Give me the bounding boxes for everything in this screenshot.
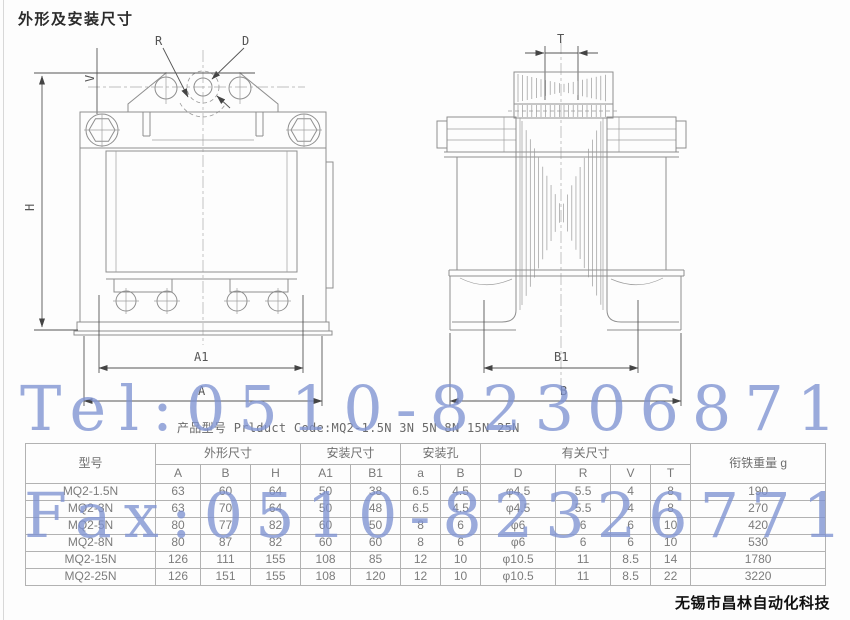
value-cell: 80 bbox=[156, 535, 201, 552]
value-cell: 151 bbox=[201, 569, 251, 586]
value-cell: 155 bbox=[251, 552, 301, 569]
sub-header-3: A1 bbox=[301, 465, 351, 484]
value-cell: 4.5 bbox=[441, 501, 481, 518]
value-cell: 111 bbox=[201, 552, 251, 569]
left-view-front: R D V bbox=[23, 34, 333, 406]
value-cell: 6.5 bbox=[401, 501, 441, 518]
value-cell: 6 bbox=[441, 535, 481, 552]
dim-label-h: H bbox=[23, 204, 37, 211]
value-cell: 87 bbox=[201, 535, 251, 552]
model-cell: MQ2-1.5N bbox=[26, 484, 156, 501]
value-cell: 126 bbox=[156, 569, 201, 586]
value-cell: 64 bbox=[251, 501, 301, 518]
value-cell: 10 bbox=[651, 518, 691, 535]
value-cell: 120 bbox=[351, 569, 401, 586]
dim-label-a1: A1 bbox=[194, 350, 208, 364]
table-row: MQ2-1.5N63606450386.54.5φ4.55.548190 bbox=[26, 484, 826, 501]
value-cell: 8 bbox=[401, 518, 441, 535]
value-cell: φ6 bbox=[481, 535, 556, 552]
value-cell: 8.5 bbox=[611, 569, 651, 586]
value-cell: 4.5 bbox=[441, 484, 481, 501]
value-cell: 5.5 bbox=[556, 484, 611, 501]
value-cell: 10 bbox=[441, 552, 481, 569]
coil-winding-hatch bbox=[522, 121, 601, 305]
value-cell: 190 bbox=[691, 484, 826, 501]
header-group-5: 衔铁重量 g bbox=[691, 444, 826, 484]
page-title: 外形及安装尺寸 bbox=[18, 8, 134, 29]
value-cell: 108 bbox=[301, 552, 351, 569]
dim-label-d: D bbox=[242, 34, 249, 48]
value-cell: 11 bbox=[556, 552, 611, 569]
table-row: MQ2-8N808782606086φ66610530 bbox=[26, 535, 826, 552]
spec-table-body: MQ2-1.5N63606450386.54.5φ4.55.548190MQ2-… bbox=[26, 484, 826, 586]
value-cell: 63 bbox=[156, 484, 201, 501]
model-cell: MQ2-25N bbox=[26, 569, 156, 586]
value-cell: 6 bbox=[556, 535, 611, 552]
dim-label-t: T bbox=[557, 32, 564, 46]
sub-header-1: B bbox=[201, 465, 251, 484]
sub-header-6: B bbox=[441, 465, 481, 484]
table-row: MQ2-25N1261511551081201210φ10.5118.52232… bbox=[26, 569, 826, 586]
sub-header-8: R bbox=[556, 465, 611, 484]
header-group-1: 外形尺寸 bbox=[156, 444, 301, 465]
value-cell: 6 bbox=[611, 535, 651, 552]
value-cell: 3220 bbox=[691, 569, 826, 586]
document-page: 外形及安装尺寸 R D bbox=[0, 0, 850, 620]
value-cell: 12 bbox=[401, 569, 441, 586]
sub-header-2: H bbox=[251, 465, 301, 484]
product-code-line: 产品型号 Prlduct Code:MQ2-1.5N 3N 5N 8N 15N … bbox=[177, 419, 520, 436]
sub-header-5: a bbox=[401, 465, 441, 484]
value-cell: 6 bbox=[611, 518, 651, 535]
model-cell: MQ2-8N bbox=[26, 535, 156, 552]
value-cell: 50 bbox=[351, 518, 401, 535]
value-cell: 530 bbox=[691, 535, 826, 552]
value-cell: φ10.5 bbox=[481, 569, 556, 586]
value-cell: 6 bbox=[441, 518, 481, 535]
value-cell: 8 bbox=[651, 501, 691, 518]
value-cell: 60 bbox=[301, 535, 351, 552]
value-cell: 22 bbox=[651, 569, 691, 586]
value-cell: φ6 bbox=[481, 518, 556, 535]
value-cell: 11 bbox=[556, 569, 611, 586]
sub-header-10: T bbox=[651, 465, 691, 484]
value-cell: 50 bbox=[301, 484, 351, 501]
value-cell: 10 bbox=[441, 569, 481, 586]
dim-label-v: V bbox=[83, 75, 97, 82]
model-cell: MQ2-3N bbox=[26, 501, 156, 518]
dim-label-b: B bbox=[560, 384, 567, 398]
dim-label-r: R bbox=[155, 34, 163, 48]
value-cell: 85 bbox=[351, 552, 401, 569]
value-cell: 8.5 bbox=[611, 552, 651, 569]
dim-label-b1: B1 bbox=[554, 350, 568, 364]
value-cell: 8 bbox=[651, 484, 691, 501]
value-cell: 63 bbox=[156, 501, 201, 518]
table-row: MQ2-3N63706450486.54.5φ4.55.548270 bbox=[26, 501, 826, 518]
value-cell: 60 bbox=[301, 518, 351, 535]
value-cell: 5.5 bbox=[556, 501, 611, 518]
value-cell: 82 bbox=[251, 535, 301, 552]
value-cell: 12 bbox=[401, 552, 441, 569]
value-cell: φ10.5 bbox=[481, 552, 556, 569]
model-cell: MQ2-5N bbox=[26, 518, 156, 535]
header-group-0: 型号 bbox=[26, 444, 156, 484]
armature-hatch bbox=[518, 74, 605, 102]
value-cell: 10 bbox=[651, 535, 691, 552]
value-cell: 64 bbox=[251, 484, 301, 501]
spec-table-header: 型号外形尺寸安装尺寸安装孔有关尺寸衔铁重量 gABHA1B1aBDRVT bbox=[26, 444, 826, 484]
sub-header-9: V bbox=[611, 465, 651, 484]
value-cell: 60 bbox=[201, 484, 251, 501]
value-cell: 420 bbox=[691, 518, 826, 535]
sub-header-7: D bbox=[481, 465, 556, 484]
value-cell: 155 bbox=[251, 569, 301, 586]
sub-header-4: B1 bbox=[351, 465, 401, 484]
value-cell: 6.5 bbox=[401, 484, 441, 501]
header-group-3: 安装孔 bbox=[401, 444, 481, 465]
right-view-side: T bbox=[437, 32, 686, 406]
header-group-2: 安装尺寸 bbox=[301, 444, 401, 465]
sub-header-0: A bbox=[156, 465, 201, 484]
value-cell: 50 bbox=[301, 501, 351, 518]
value-cell: 270 bbox=[691, 501, 826, 518]
technical-drawing: R D V bbox=[0, 0, 850, 415]
value-cell: 8 bbox=[401, 535, 441, 552]
value-cell: 4 bbox=[611, 501, 651, 518]
value-cell: 70 bbox=[201, 501, 251, 518]
model-cell: MQ2-15N bbox=[26, 552, 156, 569]
value-cell: 60 bbox=[351, 535, 401, 552]
company-footer: 无锡市昌林自动化科技 bbox=[675, 592, 830, 613]
value-cell: 4 bbox=[611, 484, 651, 501]
value-cell: φ4.5 bbox=[481, 501, 556, 518]
value-cell: 6 bbox=[556, 518, 611, 535]
value-cell: 77 bbox=[201, 518, 251, 535]
table-row: MQ2-5N807782605086φ66610420 bbox=[26, 518, 826, 535]
spec-table: 型号外形尺寸安装尺寸安装孔有关尺寸衔铁重量 gABHA1B1aBDRVT MQ2… bbox=[25, 443, 826, 586]
value-cell: 126 bbox=[156, 552, 201, 569]
value-cell: 1780 bbox=[691, 552, 826, 569]
dim-label-a: A bbox=[198, 384, 206, 398]
value-cell: 38 bbox=[351, 484, 401, 501]
table-row: MQ2-15N126111155108851210φ10.5118.514178… bbox=[26, 552, 826, 569]
header-group-4: 有关尺寸 bbox=[481, 444, 691, 465]
value-cell: 48 bbox=[351, 501, 401, 518]
value-cell: 80 bbox=[156, 518, 201, 535]
value-cell: 82 bbox=[251, 518, 301, 535]
value-cell: 14 bbox=[651, 552, 691, 569]
value-cell: 108 bbox=[301, 569, 351, 586]
value-cell: φ4.5 bbox=[481, 484, 556, 501]
